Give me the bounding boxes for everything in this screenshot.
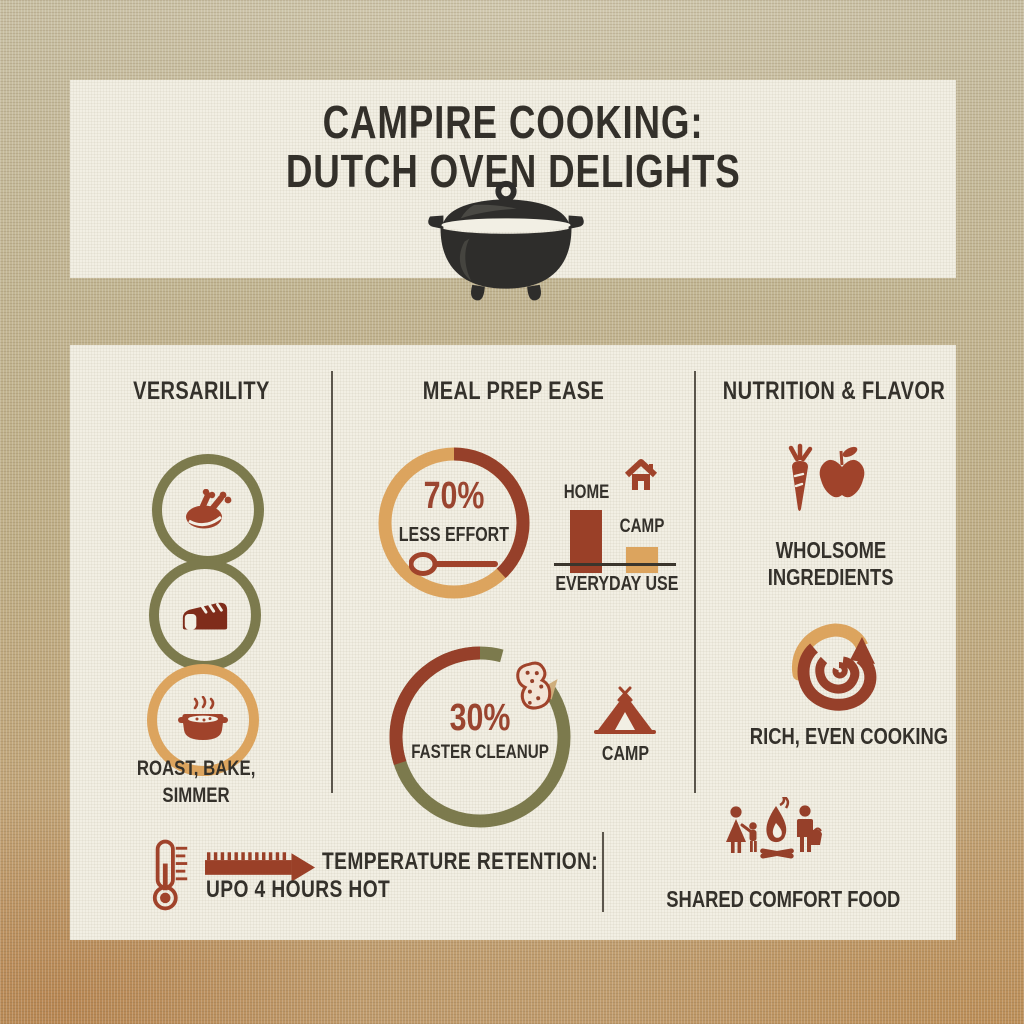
temperature-title: TEMPERATURE RETENTION: (322, 849, 667, 875)
versatility-caption-line-1: ROAST, BAKE, (137, 755, 256, 782)
infographic: CAMPIRE COOKING: DUTCH OVEN DELIGHTS VER… (0, 0, 1024, 1024)
temperature-subtitle: UPO 4 HOURS HOT (206, 877, 436, 903)
content-panel: VERSARILITY MEAL PREP EASE NUTRITION & F… (70, 345, 956, 940)
tent-icon (594, 685, 656, 737)
effort-donut-rings (375, 444, 533, 602)
versatility-badge-bake (149, 559, 261, 671)
house-icon (624, 459, 658, 491)
sponge-icon (506, 657, 560, 714)
versatility-caption: ROAST, BAKE, SIMMER (96, 755, 296, 809)
wholesome-caption-line-1: WHOLSOME (776, 537, 886, 564)
produce-icons (784, 443, 872, 527)
thermometer-icon (150, 837, 192, 913)
camp-bar-label: CAMP (602, 517, 682, 537)
usage-chart-caption: EVERYDAY USE (540, 573, 690, 595)
dutch-oven-icon (424, 176, 588, 306)
effort-label: LESS EFFORT (375, 524, 533, 546)
rich-cooking-caption: RICH, EVEN COOKING (725, 723, 935, 750)
versatility-caption-line-2: SIMMER (162, 782, 229, 809)
simmer-pot-icon (178, 696, 228, 744)
donut-chart-effort: 70% LESS EFFORT (375, 444, 533, 602)
bread-loaf-icon (179, 597, 231, 633)
camp-bar (626, 547, 658, 573)
campfire-icon (760, 797, 795, 859)
shared-caption: SHARED COMFORT FOOD (618, 886, 948, 913)
carrot-icon (791, 446, 810, 511)
title-line-1: CAMPIRE COOKING: (323, 98, 704, 147)
roast-turkey-icon (182, 489, 234, 531)
spoon-icon (409, 552, 499, 576)
versatility-badge-roast (152, 454, 264, 566)
man-figure (797, 805, 822, 852)
column-header-meal-prep: MEAL PREP EASE (332, 378, 695, 404)
tent-caption: CAMP (585, 743, 665, 765)
cleanup-label: FASTER CLEANUP (385, 742, 575, 763)
apple-icon (820, 445, 865, 498)
column-header-nutrition: NUTRITION & FLAVOR (695, 378, 956, 404)
usage-bar-chart: HOME CAMP EVERYDAY USE (550, 455, 680, 595)
woman-figure (726, 806, 750, 853)
wholesome-caption: WHOLSOME INGREDIENTS (751, 537, 911, 591)
column-header-versatility: VERSARILITY (70, 378, 332, 404)
spiral-arrow-icon (790, 620, 880, 712)
wholesome-caption-line-2: INGREDIENTS (768, 564, 894, 591)
effort-value: 70% (375, 476, 533, 516)
child-figure (749, 822, 757, 852)
chart-baseline (554, 563, 676, 566)
home-bar-label: HOME (546, 483, 626, 503)
column-divider-1 (331, 371, 333, 793)
column-divider-2 (694, 371, 696, 793)
family-campfire-icon (722, 797, 824, 875)
